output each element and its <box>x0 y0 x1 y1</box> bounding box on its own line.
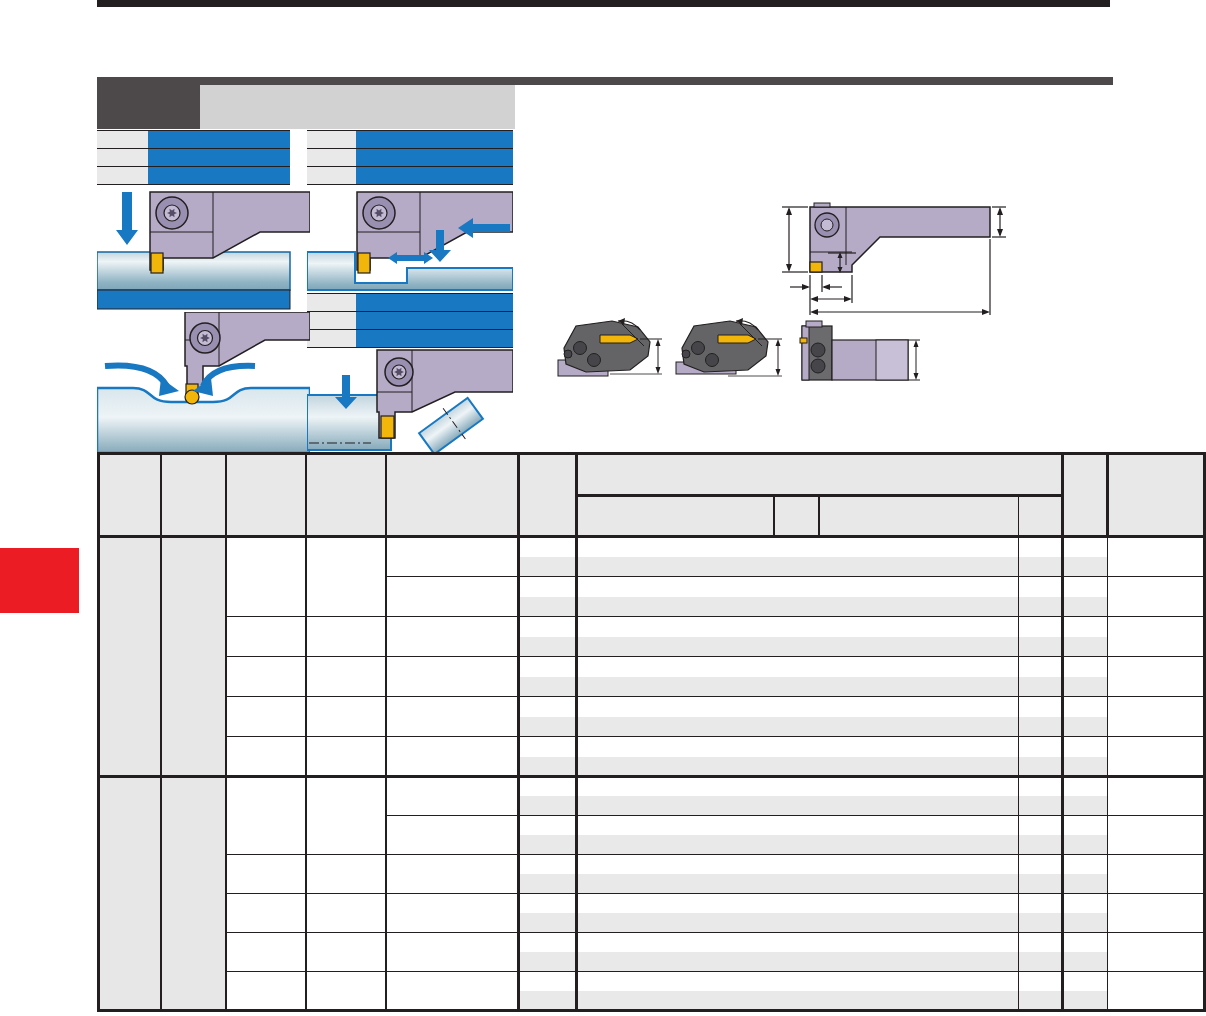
table-cell <box>518 617 576 637</box>
table-cell <box>1108 972 1205 1011</box>
table-cell <box>576 697 1019 717</box>
table-cell <box>1019 796 1063 816</box>
table-cell <box>518 717 576 737</box>
table-cell <box>1063 796 1108 816</box>
table-cell <box>518 952 576 972</box>
table-cell <box>576 894 1019 914</box>
redacted-label-cell <box>307 167 356 184</box>
table-cell <box>386 816 518 855</box>
table-cell <box>226 894 306 933</box>
table-cell <box>226 697 306 737</box>
table-cell <box>576 933 1019 953</box>
table-cell <box>226 933 306 972</box>
table-cell <box>576 816 1019 836</box>
table-cell <box>518 796 576 816</box>
table-row <box>99 697 1205 717</box>
redacted-heading-block-3 <box>307 293 513 348</box>
table-row <box>99 657 1205 677</box>
table-cell <box>306 617 386 657</box>
table-row <box>99 777 1205 797</box>
table-cell <box>1108 777 1205 816</box>
table-cell <box>576 617 1019 637</box>
table-cell <box>99 537 162 777</box>
table-cell <box>518 537 576 557</box>
table-cell <box>1019 717 1063 737</box>
redacted-label-cell <box>97 131 148 148</box>
table-cell <box>518 933 576 953</box>
table-cell <box>1063 697 1108 717</box>
table-header-cell <box>99 454 162 537</box>
table-cell <box>386 777 518 816</box>
table-header-cell <box>386 454 518 537</box>
redacted-row <box>307 312 513 330</box>
table-cell <box>518 894 576 914</box>
redacted-label-cell <box>307 294 356 311</box>
table-cell <box>1063 757 1108 777</box>
redacted-label-cell <box>307 312 356 329</box>
head-view-2 <box>676 318 782 376</box>
table-cell <box>518 637 576 657</box>
table-cell <box>1063 933 1108 953</box>
head-view-3 <box>800 321 920 380</box>
redaction-bar <box>356 312 513 329</box>
table-cell <box>226 537 306 617</box>
table-header-cell <box>1063 454 1108 537</box>
redaction-bar <box>356 131 513 148</box>
table-cell <box>1108 617 1205 657</box>
table-cell <box>1019 894 1063 914</box>
table-cell <box>1019 816 1063 836</box>
table-cell <box>306 777 386 855</box>
table-row <box>99 972 1205 992</box>
table-cell <box>518 557 576 577</box>
table-cell <box>1019 557 1063 577</box>
table-cell <box>1063 913 1108 933</box>
table-cell <box>518 757 576 777</box>
cutting-head-views <box>556 318 920 386</box>
table-header-cell <box>576 496 774 537</box>
table-cell <box>386 933 518 972</box>
table-cell <box>576 737 1019 757</box>
insert <box>800 338 807 343</box>
table-cell <box>386 617 518 657</box>
table-cell <box>518 597 576 617</box>
table-cell <box>1108 933 1205 972</box>
table-cell <box>1019 677 1063 697</box>
table-cell <box>518 913 576 933</box>
redacted-row <box>97 149 290 167</box>
table-cell <box>226 737 306 777</box>
table-cell <box>1019 657 1063 677</box>
table-header-cell <box>774 496 819 537</box>
table-cell <box>386 697 518 737</box>
table-cell <box>1108 537 1205 577</box>
redaction-bar <box>148 149 290 166</box>
insert <box>151 253 163 273</box>
tool-holder <box>185 312 310 388</box>
table-cell <box>1063 577 1108 597</box>
insert <box>718 335 756 343</box>
redacted-row <box>307 131 513 149</box>
table-cell <box>99 777 162 1011</box>
workpiece <box>97 388 310 453</box>
tool-holder-side-view <box>810 203 990 272</box>
redaction-bar <box>356 149 513 166</box>
table-cell <box>518 577 576 597</box>
redacted-row <box>307 149 513 167</box>
table-header-row <box>99 454 1205 496</box>
redaction-bar <box>148 167 290 184</box>
table-cell <box>386 972 518 1011</box>
table-cell <box>1063 737 1108 757</box>
table-cell <box>1019 874 1063 894</box>
table-cell <box>576 972 1019 992</box>
table-cell <box>1019 972 1063 992</box>
table-cell <box>226 617 306 657</box>
table-cell <box>1019 537 1063 557</box>
insert <box>381 416 394 438</box>
table-cell <box>1063 991 1108 1011</box>
table-cell <box>1108 855 1205 894</box>
table-cell <box>306 537 386 617</box>
header-rule-bar <box>97 77 1113 85</box>
table-cell <box>1108 657 1205 697</box>
profiling-figure <box>97 312 310 455</box>
table-cell <box>1108 737 1205 777</box>
redaction-bar <box>356 167 513 184</box>
table-cell <box>161 537 226 777</box>
table-cell <box>518 874 576 894</box>
table-cell <box>226 657 306 697</box>
table-header-cell <box>1019 496 1063 537</box>
table-cell <box>1019 991 1063 1011</box>
table-header-cell <box>819 496 1019 537</box>
table-cell <box>1063 677 1108 697</box>
table-cell <box>576 597 1019 617</box>
table-cell <box>1063 617 1108 637</box>
table-cell <box>576 855 1019 875</box>
table-cell <box>1063 637 1108 657</box>
holder-dimension-drawing <box>778 195 1010 320</box>
redacted-row <box>307 167 513 185</box>
table-cell <box>226 855 306 894</box>
table-cell <box>226 972 306 1011</box>
table-cell <box>1019 597 1063 617</box>
table-cell <box>1019 617 1063 637</box>
table-cell <box>576 637 1019 657</box>
redacted-label-cell <box>307 330 356 347</box>
table-cell <box>1019 637 1063 657</box>
table-cell <box>576 796 1019 816</box>
table-cell <box>1063 972 1108 992</box>
table-cell <box>1019 697 1063 717</box>
table-header-cell <box>226 454 306 537</box>
table-header-cell <box>306 454 386 537</box>
table-cell <box>386 855 518 894</box>
table-cell <box>1063 952 1108 972</box>
table-row <box>99 933 1205 953</box>
workpiece-section-band <box>97 290 290 309</box>
table-row <box>99 617 1205 637</box>
redacted-row <box>307 294 513 312</box>
table-cell <box>306 855 386 894</box>
table-cell <box>1108 894 1205 933</box>
table-cell <box>1019 757 1063 777</box>
table-header-group-cell <box>576 454 1063 496</box>
table-header-cell <box>161 454 226 537</box>
table-cell <box>1063 855 1108 875</box>
table-cell <box>518 697 576 717</box>
table-row <box>99 855 1205 875</box>
insert <box>600 335 638 343</box>
table-cell <box>576 952 1019 972</box>
redacted-heading-block-2 <box>307 130 513 185</box>
table-cell <box>1019 577 1063 597</box>
redaction-bar <box>148 131 290 148</box>
table-cell <box>1019 913 1063 933</box>
insert <box>810 262 822 272</box>
parting-off-figure <box>307 348 513 455</box>
table-row <box>99 537 1205 557</box>
redacted-row <box>307 330 513 348</box>
table-cell <box>306 894 386 933</box>
table-cell <box>1063 777 1108 797</box>
redacted-row <box>97 131 290 149</box>
table-header-cell <box>1108 454 1205 537</box>
table-cell <box>576 717 1019 737</box>
table-cell <box>1019 933 1063 953</box>
table-cell <box>306 697 386 737</box>
table-cell <box>518 777 576 797</box>
insert <box>358 253 370 273</box>
table-cell <box>576 835 1019 855</box>
feed-down-arrow-icon <box>116 192 138 245</box>
table-header-cell <box>518 454 576 537</box>
table-cell <box>386 657 518 697</box>
table-cell <box>576 913 1019 933</box>
redacted-row <box>97 167 290 185</box>
table-cell <box>518 737 576 757</box>
table-cell <box>576 657 1019 677</box>
table-cell <box>576 757 1019 777</box>
table-cell <box>306 972 386 1011</box>
redacted-label-cell <box>307 149 356 166</box>
table-cell <box>518 991 576 1011</box>
redaction-bar <box>356 330 513 347</box>
table-cell <box>518 657 576 677</box>
table-cell <box>1063 717 1108 737</box>
table-cell <box>576 991 1019 1011</box>
redacted-heading-block-1 <box>97 130 290 185</box>
header-light-block <box>200 85 515 129</box>
table-cell <box>226 777 306 855</box>
table-cell <box>1019 777 1063 797</box>
table-cell <box>576 874 1019 894</box>
table-cell <box>1019 835 1063 855</box>
table-cell <box>1063 597 1108 617</box>
table-cell <box>386 894 518 933</box>
redacted-label-cell <box>97 149 148 166</box>
table-cell <box>306 657 386 697</box>
table-cell <box>161 777 226 1011</box>
redacted-label-cell <box>307 131 356 148</box>
table-cell <box>576 577 1019 597</box>
table-cell <box>1063 835 1108 855</box>
table-cell <box>386 537 518 577</box>
table-cell <box>1063 537 1108 557</box>
table-cell <box>518 972 576 992</box>
table-cell <box>1108 577 1205 617</box>
table-cell <box>518 855 576 875</box>
table-cell <box>1108 816 1205 855</box>
table-cell <box>1019 855 1063 875</box>
grooving-figure <box>97 187 310 312</box>
table-cell <box>576 537 1019 557</box>
catalog-page <box>0 0 1206 1016</box>
table-cell <box>306 933 386 972</box>
table-cell <box>1063 894 1108 914</box>
table-cell <box>1063 874 1108 894</box>
table-cell <box>386 577 518 617</box>
table-cell <box>576 677 1019 697</box>
table-cell <box>1019 737 1063 757</box>
product-table <box>97 452 1206 1012</box>
table-cell <box>1108 697 1205 737</box>
table-cell <box>1063 557 1108 577</box>
table-cell <box>518 677 576 697</box>
turning-figure <box>307 187 513 292</box>
table-cell <box>1063 657 1108 677</box>
head-view-1 <box>558 318 662 376</box>
table-row <box>99 894 1205 914</box>
table-cell <box>1019 952 1063 972</box>
thumb-index-tab <box>0 548 79 613</box>
round-insert-tip <box>185 390 199 404</box>
table-cell <box>576 777 1019 797</box>
header-dark-block <box>97 77 200 129</box>
table-cell <box>306 737 386 777</box>
redaction-bar <box>356 294 513 311</box>
table-cell <box>576 557 1019 577</box>
redacted-label-cell <box>97 167 148 184</box>
top-rule <box>97 0 1110 7</box>
table-cell <box>518 816 576 836</box>
table-cell <box>518 835 576 855</box>
table-row <box>99 737 1205 757</box>
table-cell <box>1063 816 1108 836</box>
table-cell <box>386 737 518 777</box>
